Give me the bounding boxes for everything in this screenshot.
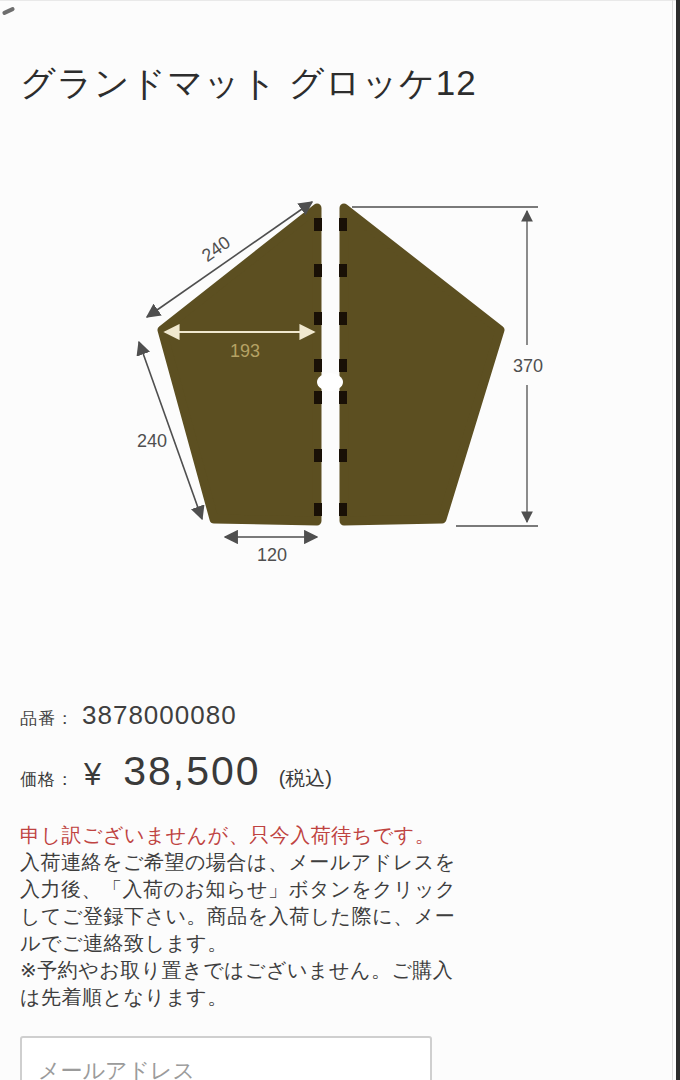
part-number-row: 品番： 3878000080 xyxy=(20,700,237,731)
mat-right-half xyxy=(344,208,500,521)
out-of-stock-alert: 申し訳ございませんが、只今入荷待ちです。 xyxy=(20,822,650,849)
notice-text-line: ※予約やお取り置きではございません。ご購入 xyxy=(20,957,650,984)
price-currency-symbol: ¥ xyxy=(84,757,101,793)
notice-text-line: は先着順となります。 xyxy=(20,984,650,1011)
price-amount: 38,500 xyxy=(123,748,260,795)
price-row: 価格： ¥ 38,500 (税込) xyxy=(20,748,332,795)
product-page: グランドマット グロッケ12 xyxy=(0,0,680,1080)
price-tax-note: (税込) xyxy=(279,765,332,792)
dim-label-lower-edge: 240 xyxy=(137,431,167,451)
part-number-value: 3878000080 xyxy=(82,700,237,731)
notice-text-line: 入力後、「入荷のお知らせ」ボタンをクリック xyxy=(20,876,650,903)
center-notch xyxy=(317,373,343,391)
notice-text-line: してご登録下さい。商品を入荷した際に、メー xyxy=(20,903,650,930)
dim-label-bottom-width: 120 xyxy=(257,545,287,565)
page-edge-hairline xyxy=(672,0,673,1080)
stock-notice: 申し訳ございませんが、只今入荷待ちです。 入荷連絡をご希望の場合は、メールアドレ… xyxy=(20,822,650,1011)
dim-label-height: 370 xyxy=(513,356,543,376)
email-input[interactable] xyxy=(20,1036,432,1080)
dimension-diagram: 240 193 240 120 370 xyxy=(0,0,680,650)
notice-text-line: 入荷連絡をご希望の場合は、メールアドレスを xyxy=(20,849,650,876)
notice-text-line: ルでご連絡致します。 xyxy=(20,930,650,957)
dim-label-half-width: 193 xyxy=(230,341,260,361)
price-label: 価格： xyxy=(20,768,74,791)
page-edge-dark-border xyxy=(676,0,680,1080)
part-number-label: 品番： xyxy=(20,707,74,730)
